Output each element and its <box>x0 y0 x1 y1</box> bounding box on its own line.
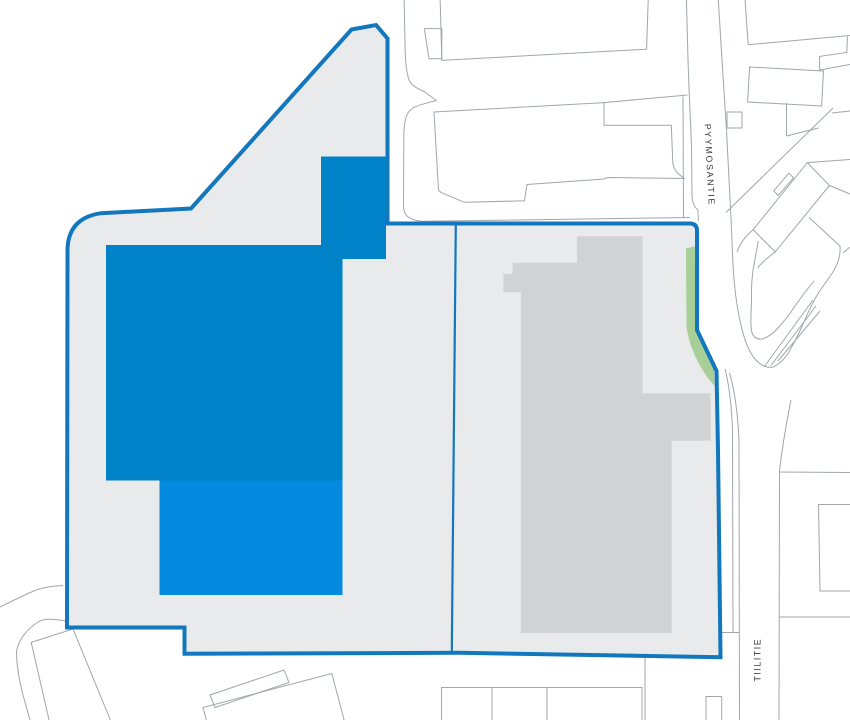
svg-text:TIILITIE: TIILITIE <box>752 638 762 682</box>
